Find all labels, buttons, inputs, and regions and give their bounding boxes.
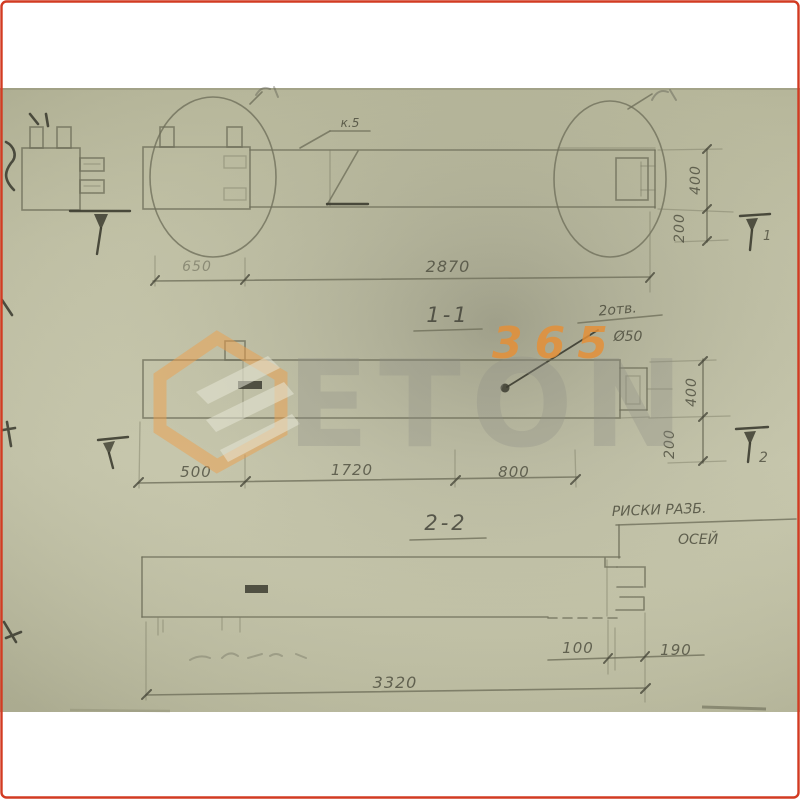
dim-2870: 2870	[426, 257, 471, 276]
watermark-number: 365	[492, 318, 620, 369]
dim-400-top: 400	[688, 165, 704, 195]
hole-note-top: 2отв.	[598, 300, 638, 319]
marker-1-label: 1	[763, 229, 772, 244]
watermark-name: ETON	[287, 336, 693, 475]
drawing-canvas: к.5 650 2870 400 200	[0, 0, 800, 800]
dim-190: 190	[660, 641, 692, 659]
section-1-1-title: 1-1	[426, 303, 469, 327]
dim-200-top: 200	[672, 213, 688, 243]
section-2-2-title: 2-2	[424, 511, 467, 535]
elevation-callout-label: к.5	[341, 116, 360, 130]
axis-note-bottom: ОСЕЙ	[678, 530, 719, 548]
dim-100: 100	[562, 639, 594, 657]
axis-note-top: РИСКИ РАЗБ.	[612, 501, 707, 520]
dim-3320: 3320	[373, 673, 418, 692]
dim-650: 650	[182, 259, 212, 275]
marker-2-label: 2	[759, 450, 769, 466]
scanned-drawing-page: к.5 650 2870 400 200	[0, 0, 800, 800]
